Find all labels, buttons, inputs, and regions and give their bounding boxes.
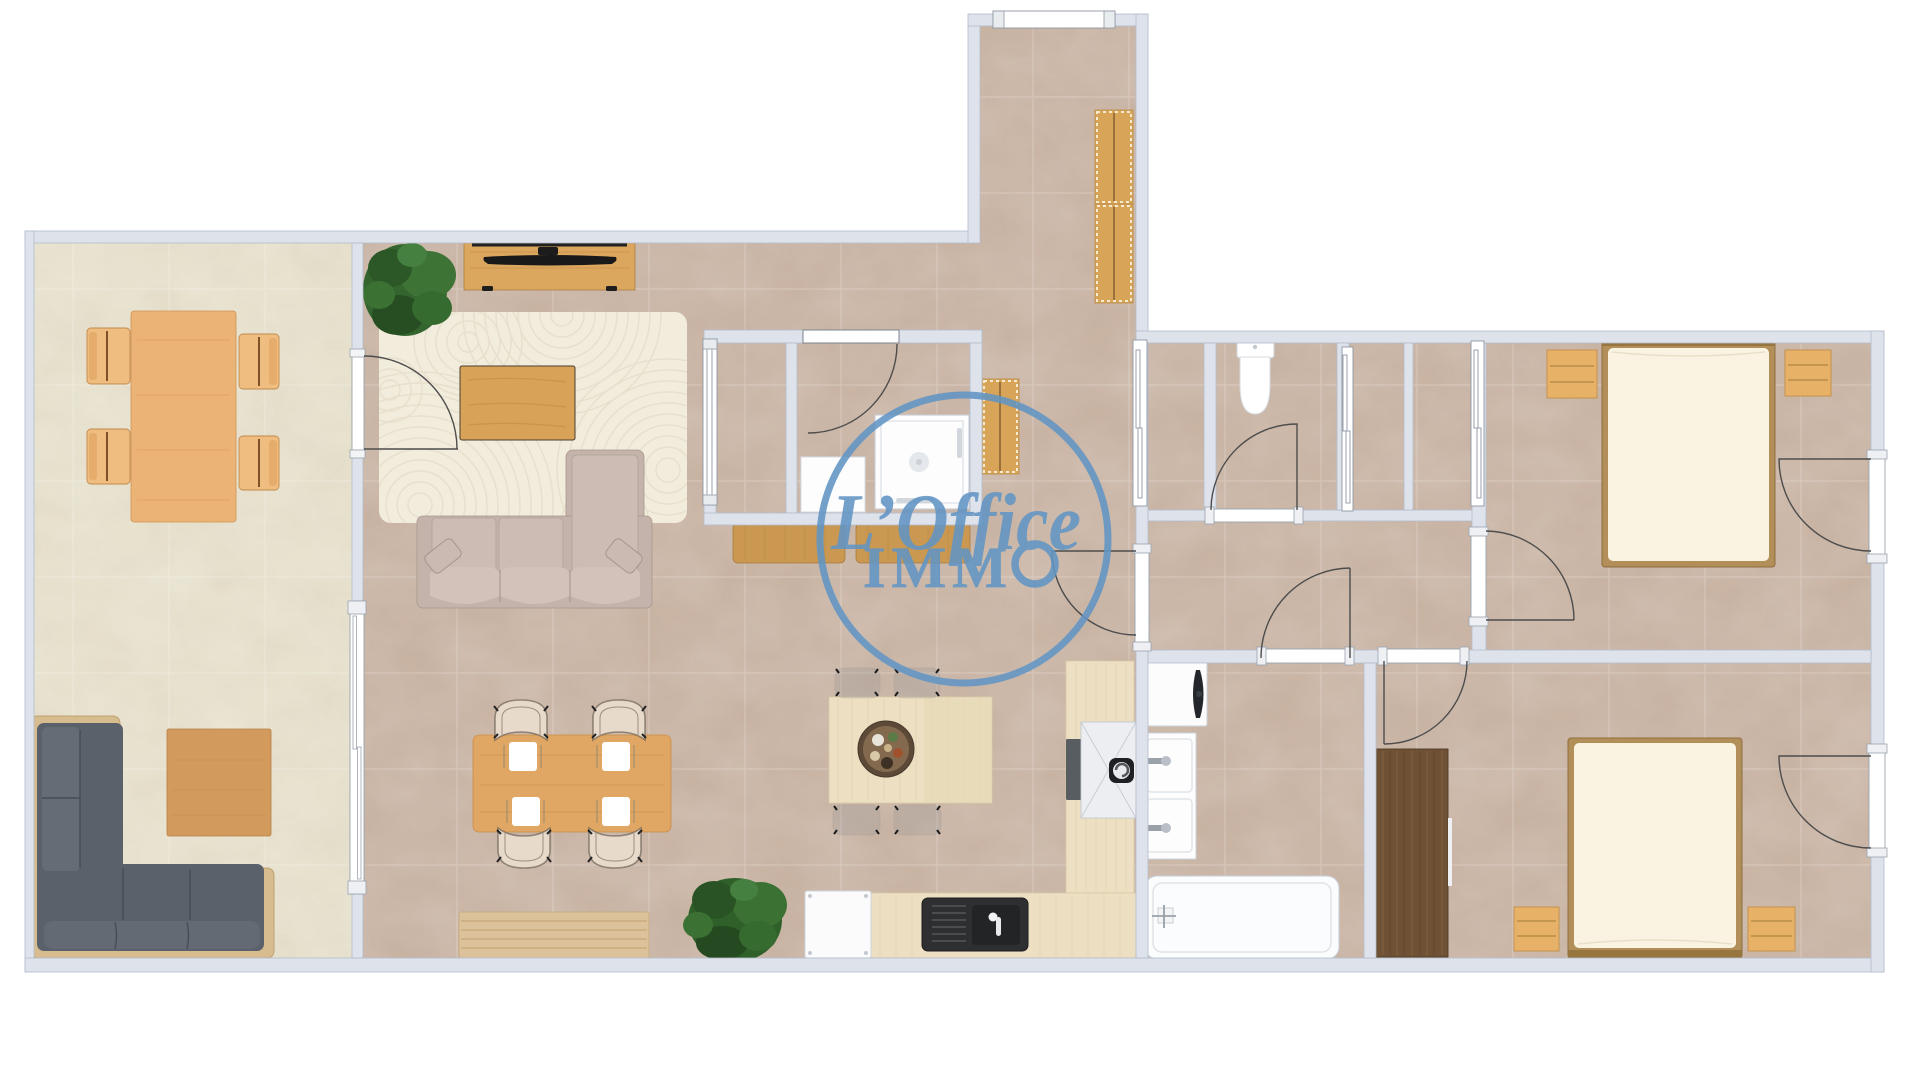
svg-text:IMM: IMM xyxy=(863,535,1013,600)
